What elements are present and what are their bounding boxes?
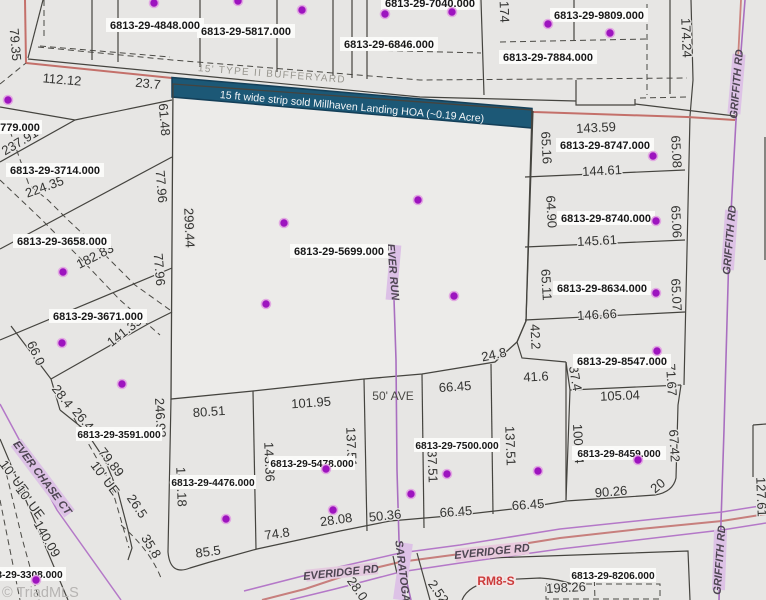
- svg-text:174: 174: [497, 1, 513, 23]
- svg-text:66.45: 66.45: [511, 496, 545, 513]
- svg-text:105.04: 105.04: [600, 387, 640, 403]
- svg-text:50' AVE: 50' AVE: [372, 389, 413, 403]
- svg-text:66.45: 66.45: [438, 378, 472, 395]
- svg-text:6813-29-8459.000: 6813-29-8459.000: [577, 449, 661, 460]
- svg-text:6813-29-5699.000: 6813-29-5699.000: [294, 246, 384, 258]
- svg-text:6813-29-8634.000: 6813-29-8634.000: [557, 283, 647, 295]
- svg-text:143.59: 143.59: [576, 119, 616, 136]
- svg-text:61.48: 61.48: [156, 103, 174, 137]
- svg-text:6813-29-3671.000: 6813-29-3671.000: [53, 311, 143, 323]
- svg-text:6813-29-5817.000: 6813-29-5817.000: [201, 26, 291, 38]
- svg-text:77.96: 77.96: [153, 170, 171, 204]
- svg-text:6813-29-6846.000: 6813-29-6846.000: [344, 39, 434, 51]
- svg-text:101.95: 101.95: [291, 394, 332, 412]
- svg-text:6813-29-4848.000: 6813-29-4848.000: [110, 20, 200, 32]
- svg-text:6813-29-8547.000: 6813-29-8547.000: [577, 356, 667, 368]
- svg-text:© TriadMLS: © TriadMLS: [2, 585, 79, 600]
- svg-text:174.24: 174.24: [678, 18, 694, 58]
- svg-text:146.66: 146.66: [577, 306, 617, 323]
- svg-text:42.2: 42.2: [527, 324, 543, 350]
- svg-text:71.67: 71.67: [663, 363, 680, 396]
- svg-text:6813-29-3714.000: 6813-29-3714.000: [10, 165, 100, 177]
- svg-text:6813-29-3658.000: 6813-29-3658.000: [17, 236, 107, 248]
- svg-text:79.35: 79.35: [7, 28, 25, 62]
- svg-text:RM8-S: RM8-S: [477, 574, 514, 588]
- svg-text:90.26: 90.26: [594, 483, 628, 501]
- svg-text:23.7: 23.7: [135, 75, 162, 93]
- svg-text:6813-29-5478.000: 6813-29-5478.000: [270, 459, 354, 470]
- svg-text:779.000: 779.000: [0, 122, 40, 134]
- svg-text:65.07: 65.07: [668, 278, 685, 311]
- svg-text:6813-29-8740.000: 6813-29-8740.000: [561, 213, 651, 225]
- svg-text:65.06: 65.06: [668, 205, 685, 238]
- svg-text:127.61: 127.61: [753, 477, 766, 517]
- svg-text:6813-29-4476.000: 6813-29-4476.000: [171, 478, 255, 489]
- svg-text:41.6: 41.6: [523, 368, 549, 384]
- svg-text:6813-29-8206.000: 6813-29-8206.000: [571, 571, 655, 582]
- svg-text:6813-29-7500.000: 6813-29-7500.000: [415, 441, 499, 452]
- svg-text:145.61: 145.61: [577, 232, 617, 249]
- svg-text:66.45: 66.45: [439, 503, 473, 520]
- svg-text:299.44: 299.44: [181, 208, 197, 248]
- svg-text:6813-29-9809.000: 6813-29-9809.000: [554, 10, 644, 22]
- svg-text:65.08: 65.08: [668, 135, 685, 168]
- svg-text:137.51: 137.51: [502, 426, 518, 466]
- svg-text:144.61: 144.61: [582, 162, 622, 179]
- svg-text:65.16: 65.16: [538, 131, 555, 164]
- svg-text:67.42: 67.42: [666, 429, 683, 462]
- svg-text:6813-29-8747.000: 6813-29-8747.000: [560, 140, 650, 152]
- svg-text:6813-29-3591.000: 6813-29-3591.000: [77, 430, 161, 441]
- svg-text:77.96: 77.96: [151, 253, 169, 287]
- svg-text:65.11: 65.11: [538, 269, 555, 301]
- svg-text:6813-29-7040.000: 6813-29-7040.000: [385, 0, 475, 10]
- svg-text:6813-29-7884.000: 6813-29-7884.000: [503, 52, 593, 64]
- svg-text:80.51: 80.51: [192, 403, 226, 420]
